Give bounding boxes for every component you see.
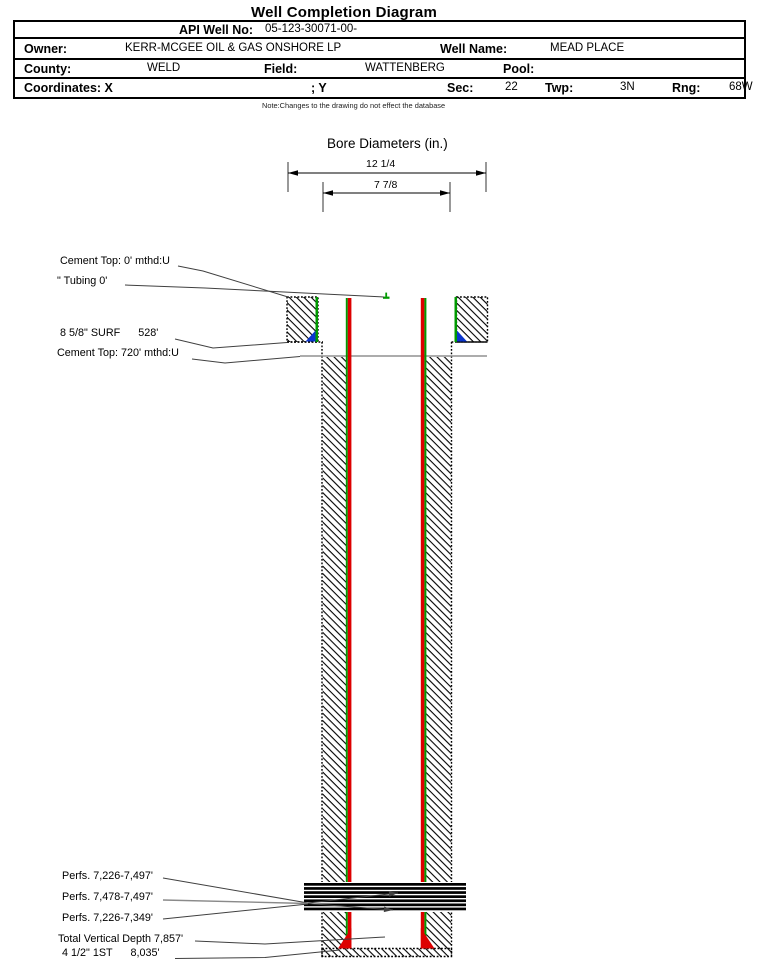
leader-production-casing	[175, 950, 340, 959]
well-completion-diagram-page: Well Completion Diagram API Well No: 05-…	[0, 0, 759, 962]
arrowhead	[323, 190, 333, 195]
surface-casing-right	[455, 297, 458, 342]
arrowhead	[288, 170, 298, 175]
bottom-fill-strip	[322, 949, 452, 957]
tubing-marker-stub	[385, 293, 387, 297]
production-casing-left	[348, 298, 352, 949]
arrowhead	[440, 190, 450, 195]
production-casing-right-outer	[424, 298, 426, 949]
production-casing-right	[421, 298, 425, 949]
leader-perfs-2	[163, 900, 308, 904]
leader-total-vertical-depth	[195, 937, 385, 944]
arrowhead	[476, 170, 486, 175]
wellbore-schematic	[0, 0, 759, 962]
leader-cement-top-production	[192, 357, 300, 364]
outer-diameter-ticks	[288, 162, 486, 192]
leader-perfs-1	[163, 878, 308, 903]
production-casing-left-outer	[346, 298, 348, 949]
production-cement-right-upper	[426, 357, 451, 883]
inner-diameter-ticks	[323, 182, 450, 212]
perforation-bar	[304, 891, 466, 894]
perforation-bar	[304, 895, 466, 898]
perforation-bar	[304, 887, 466, 890]
production-cement-left-upper	[323, 357, 347, 883]
leader-perfs-3	[163, 904, 308, 919]
leader-surface-casing	[175, 339, 287, 348]
leader-cement-top-surface	[178, 266, 288, 297]
perforation-bar	[304, 883, 466, 886]
surface-casing-left	[316, 297, 319, 342]
